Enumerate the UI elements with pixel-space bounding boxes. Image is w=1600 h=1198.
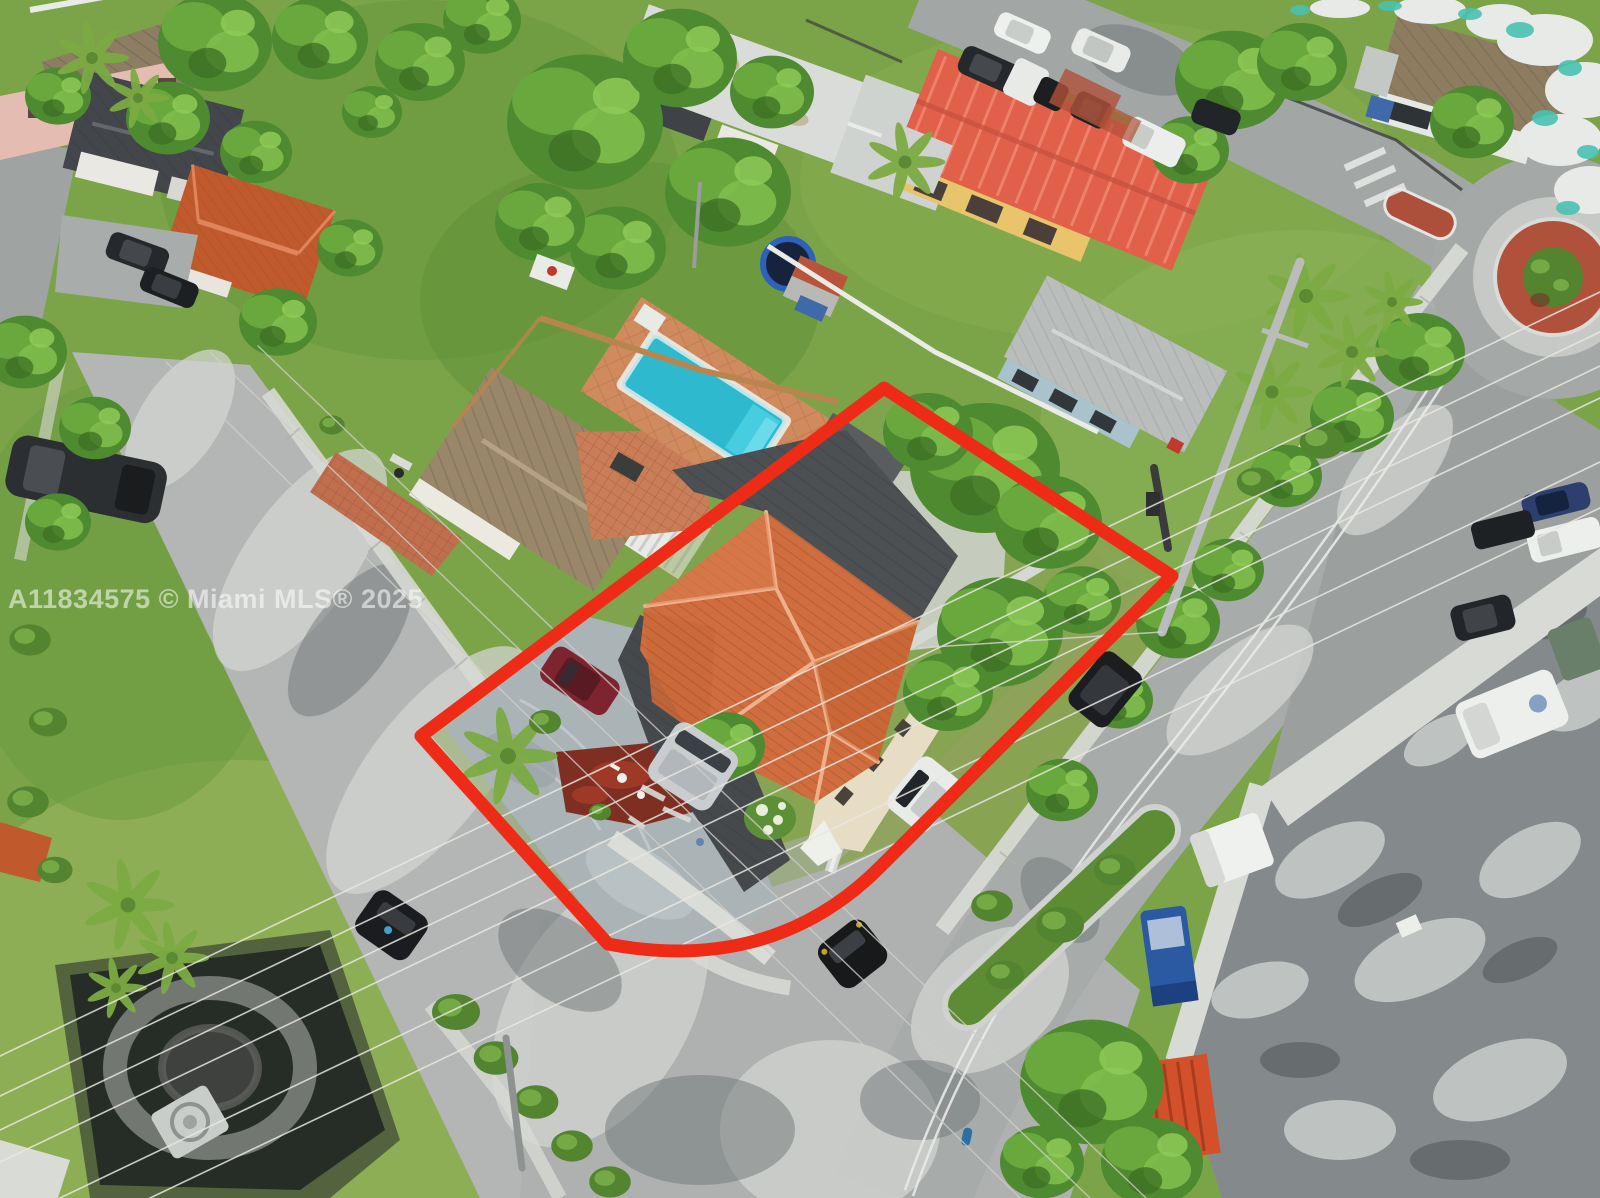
aerial-photo-canvas: A11834575 © Miami MLS® 2025	[0, 0, 1600, 1198]
aerial-photo: A11834575 © Miami MLS® 2025	[0, 0, 1600, 1198]
mls-watermark: A11834575 © Miami MLS® 2025	[8, 584, 423, 614]
